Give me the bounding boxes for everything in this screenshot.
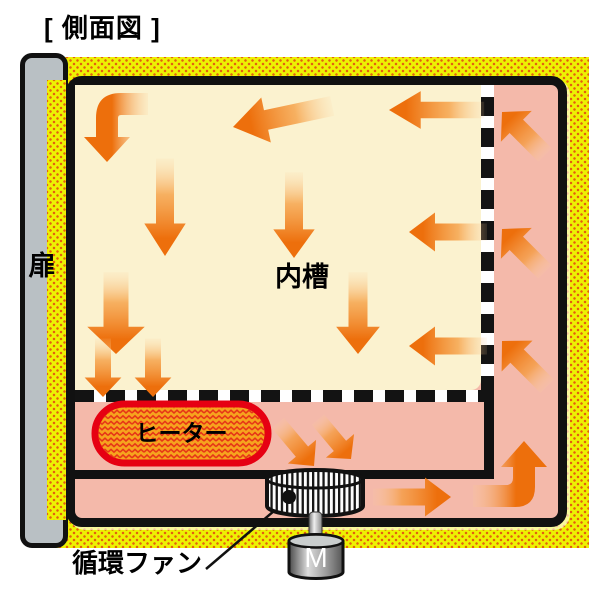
motor-label: M: [289, 543, 343, 574]
heater-label: ヒーター: [95, 404, 268, 463]
heater-compartment-wall-bottom: [75, 470, 494, 479]
heater-compartment-wall-right: [484, 400, 494, 472]
diagram-title: [ 側面図 ]: [44, 14, 161, 43]
side-view-diagram: [ 側面図 ] 扉 内槽 ヒーター M 循環ファン: [0, 0, 600, 600]
door-label: 扉: [22, 252, 62, 282]
door-insulation-strip: [47, 80, 66, 520]
perforated-wall-bottom: [75, 390, 494, 402]
inner-chamber: [75, 85, 481, 390]
perforated-wall-right: [481, 85, 494, 402]
inner-chamber-label: 内槽: [262, 263, 342, 293]
circulation-fan-label: 循環ファン: [72, 549, 202, 578]
